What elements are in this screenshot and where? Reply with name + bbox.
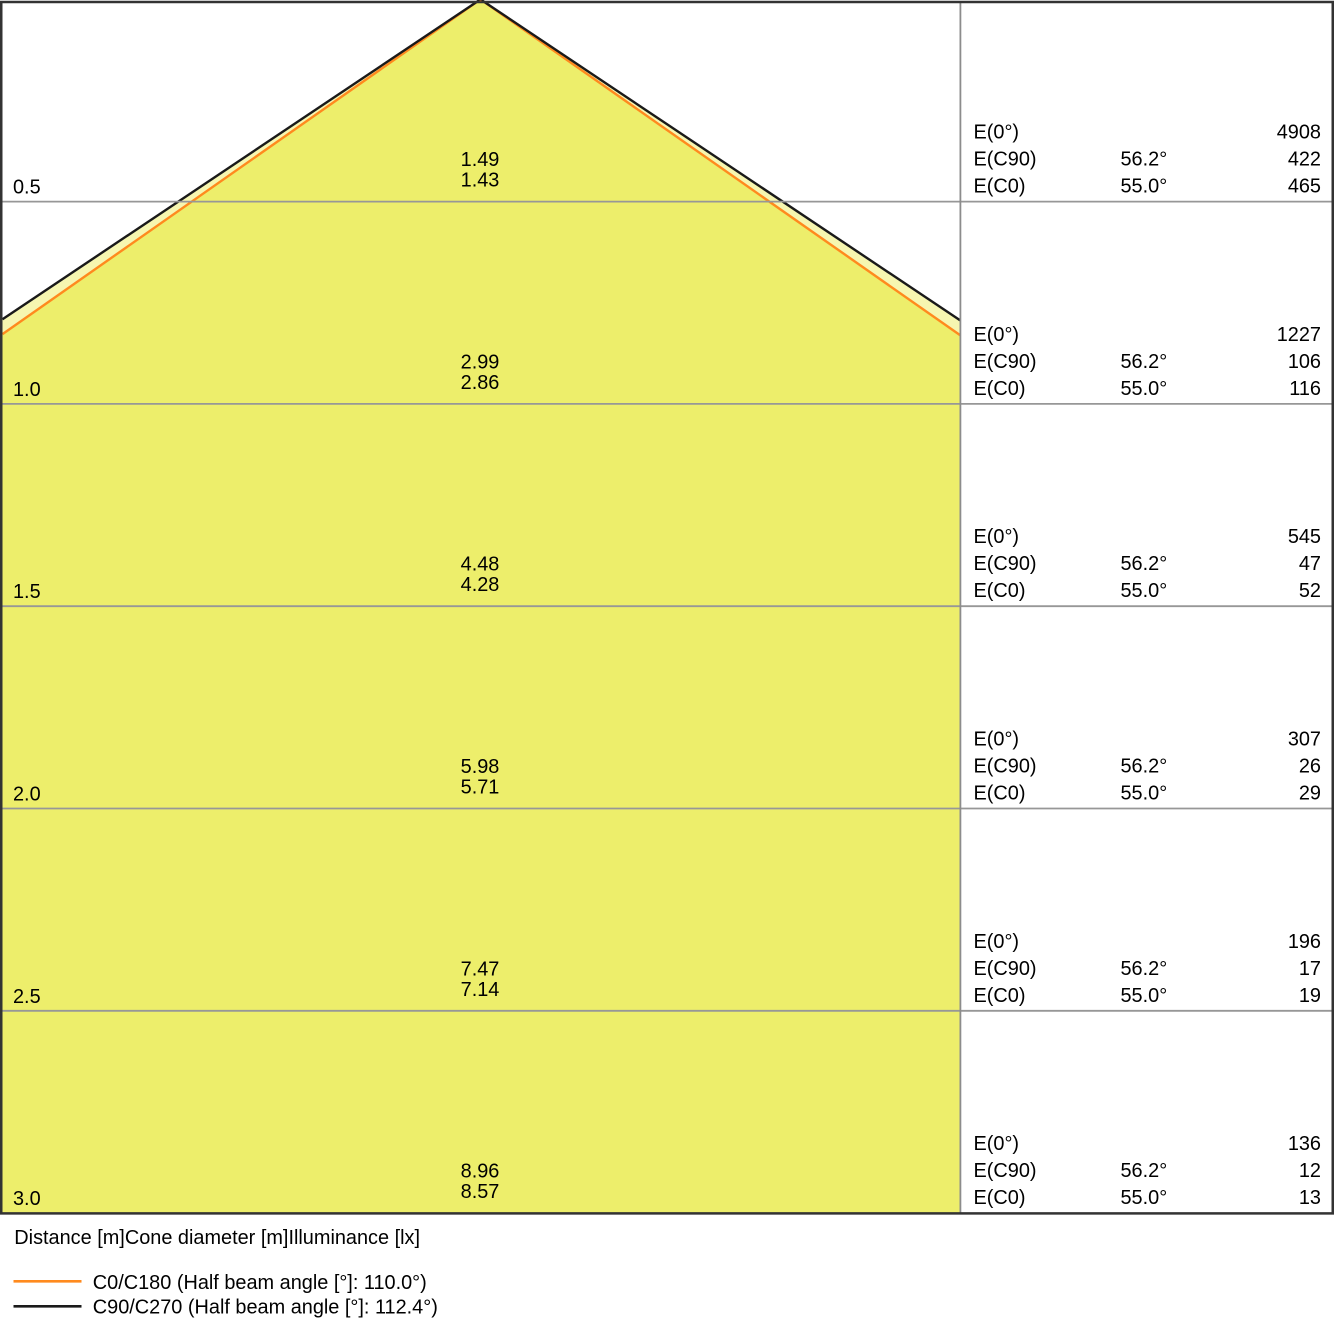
svg-text:E(0°): E(0°) [974,122,1020,144]
svg-text:56.2°: 56.2° [1121,149,1168,171]
svg-text:307: 307 [1288,729,1321,751]
svg-text:E(C0): E(C0) [974,176,1026,198]
svg-text:17: 17 [1299,958,1321,980]
svg-text:C90/C270 (Half beam angle [°]:: C90/C270 (Half beam angle [°]: 112.4°) [93,1296,438,1318]
svg-text:47: 47 [1299,553,1321,575]
svg-text:C0/C180 (Half beam angle [°]:: C0/C180 (Half beam angle [°]: 110.0°) [93,1272,427,1294]
svg-text:0.5: 0.5 [13,177,41,199]
svg-text:465: 465 [1288,176,1321,198]
svg-text:E(0°): E(0°) [974,931,1020,953]
svg-text:2.0: 2.0 [13,784,41,806]
svg-text:E(C0): E(C0) [974,378,1026,400]
svg-text:1.0: 1.0 [13,379,41,401]
svg-text:13: 13 [1299,1187,1321,1209]
svg-text:1227: 1227 [1277,324,1321,346]
svg-text:1.49: 1.49 [461,149,500,171]
svg-text:E(C90): E(C90) [974,149,1037,171]
svg-text:26: 26 [1299,756,1321,778]
svg-text:4.48: 4.48 [461,554,500,576]
svg-text:52: 52 [1299,580,1321,602]
svg-text:55.0°: 55.0° [1121,783,1168,805]
svg-text:E(C90): E(C90) [974,553,1037,575]
svg-text:29: 29 [1299,783,1321,805]
svg-text:56.2°: 56.2° [1121,351,1168,373]
svg-text:8.57: 8.57 [461,1181,500,1203]
svg-text:E(0°): E(0°) [974,526,1020,548]
svg-text:55.0°: 55.0° [1121,1187,1168,1209]
svg-text:7.14: 7.14 [461,979,500,1001]
svg-text:5.98: 5.98 [461,756,500,778]
svg-text:55.0°: 55.0° [1121,985,1168,1007]
svg-text:56.2°: 56.2° [1121,958,1168,980]
svg-text:422: 422 [1288,149,1321,171]
svg-text:E(0°): E(0°) [974,324,1020,346]
svg-text:56.2°: 56.2° [1121,1160,1168,1182]
svg-text:55.0°: 55.0° [1121,580,1168,602]
svg-text:4908: 4908 [1277,122,1321,144]
svg-text:E(0°): E(0°) [974,1133,1020,1155]
svg-text:8.96: 8.96 [461,1161,500,1183]
svg-text:2.5: 2.5 [13,986,41,1008]
svg-text:136: 136 [1288,1133,1321,1155]
svg-text:E(C0): E(C0) [974,1187,1026,1209]
svg-text:E(C0): E(C0) [974,580,1026,602]
svg-text:E(C90): E(C90) [974,756,1037,778]
svg-text:19: 19 [1299,985,1321,1007]
svg-text:196: 196 [1288,931,1321,953]
svg-text:E(C90): E(C90) [974,958,1037,980]
svg-text:2.86: 2.86 [461,372,500,394]
svg-text:2.99: 2.99 [461,351,500,373]
svg-text:106: 106 [1288,351,1321,373]
svg-text:E(C90): E(C90) [974,1160,1037,1182]
svg-text:5.71: 5.71 [461,777,500,799]
svg-text:7.47: 7.47 [461,958,500,980]
svg-text:56.2°: 56.2° [1121,756,1168,778]
svg-text:3.0: 3.0 [13,1188,41,1210]
svg-text:E(C0): E(C0) [974,783,1026,805]
svg-text:Distance [m]Cone diameter [m]I: Distance [m]Cone diameter [m]Illuminance… [14,1227,420,1249]
svg-text:55.0°: 55.0° [1121,378,1168,400]
svg-text:56.2°: 56.2° [1121,553,1168,575]
svg-text:12: 12 [1299,1160,1321,1182]
svg-text:4.28: 4.28 [461,574,500,596]
svg-text:55.0°: 55.0° [1121,176,1168,198]
svg-text:1.43: 1.43 [461,170,500,192]
svg-text:E(C90): E(C90) [974,351,1037,373]
svg-text:545: 545 [1288,526,1321,548]
svg-text:1.5: 1.5 [13,581,41,603]
svg-text:E(C0): E(C0) [974,985,1026,1007]
svg-text:116: 116 [1289,378,1321,400]
svg-text:E(0°): E(0°) [974,729,1020,751]
